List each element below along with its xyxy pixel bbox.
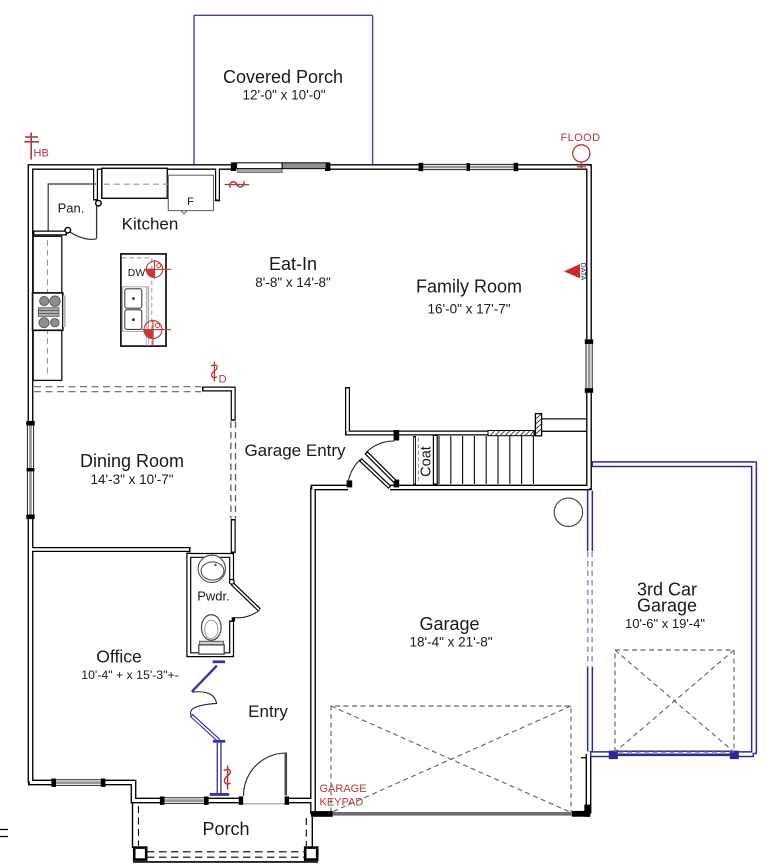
svg-text:DATA: DATA (579, 263, 586, 281)
svg-text:DW: DW (128, 267, 146, 279)
svg-text:8'-8" x 14'-8": 8'-8" x 14'-8" (255, 275, 331, 290)
svg-text:14'-3" x 10'-7": 14'-3" x 10'-7" (90, 472, 173, 487)
svg-text:FLOOD: FLOOD (561, 132, 601, 144)
svg-text:Entry: Entry (248, 702, 288, 721)
svg-text:Office: Office (96, 647, 141, 667)
svg-text:Porch: Porch (202, 819, 249, 839)
svg-text:10'-4" + x 15'-3"+-: 10'-4" + x 15'-3"+- (81, 668, 179, 682)
svg-text:KEYPAD: KEYPAD (320, 797, 364, 809)
svg-text:Family Room: Family Room (416, 277, 522, 297)
svg-text:Pan.: Pan. (58, 201, 85, 216)
svg-text:Eat-In: Eat-In (269, 254, 317, 274)
svg-text:GARAGE: GARAGE (320, 783, 367, 795)
svg-text:Kitchen: Kitchen (122, 215, 179, 234)
svg-text:D: D (219, 374, 227, 386)
svg-text:Dining Room: Dining Room (80, 451, 184, 471)
svg-text:12'-0" x 10'-0": 12'-0" x 10'-0" (242, 88, 325, 103)
svg-text:16'-0" x 17'-7": 16'-0" x 17'-7" (427, 302, 510, 317)
svg-text:Coat: Coat (419, 446, 435, 477)
svg-text:F: F (187, 196, 194, 208)
svg-text:HB: HB (34, 148, 49, 160)
svg-text:18'-4" x 21'-8": 18'-4" x 21'-8" (409, 635, 492, 650)
svg-text:Garage: Garage (637, 596, 697, 616)
svg-text:10'-6" x 19'-4": 10'-6" x 19'-4" (625, 616, 705, 631)
svg-text:Pwdr.: Pwdr. (197, 589, 230, 604)
svg-text:Garage: Garage (419, 614, 479, 634)
svg-text:Covered Porch: Covered Porch (223, 67, 343, 87)
svg-text:Garage Entry: Garage Entry (244, 441, 346, 460)
